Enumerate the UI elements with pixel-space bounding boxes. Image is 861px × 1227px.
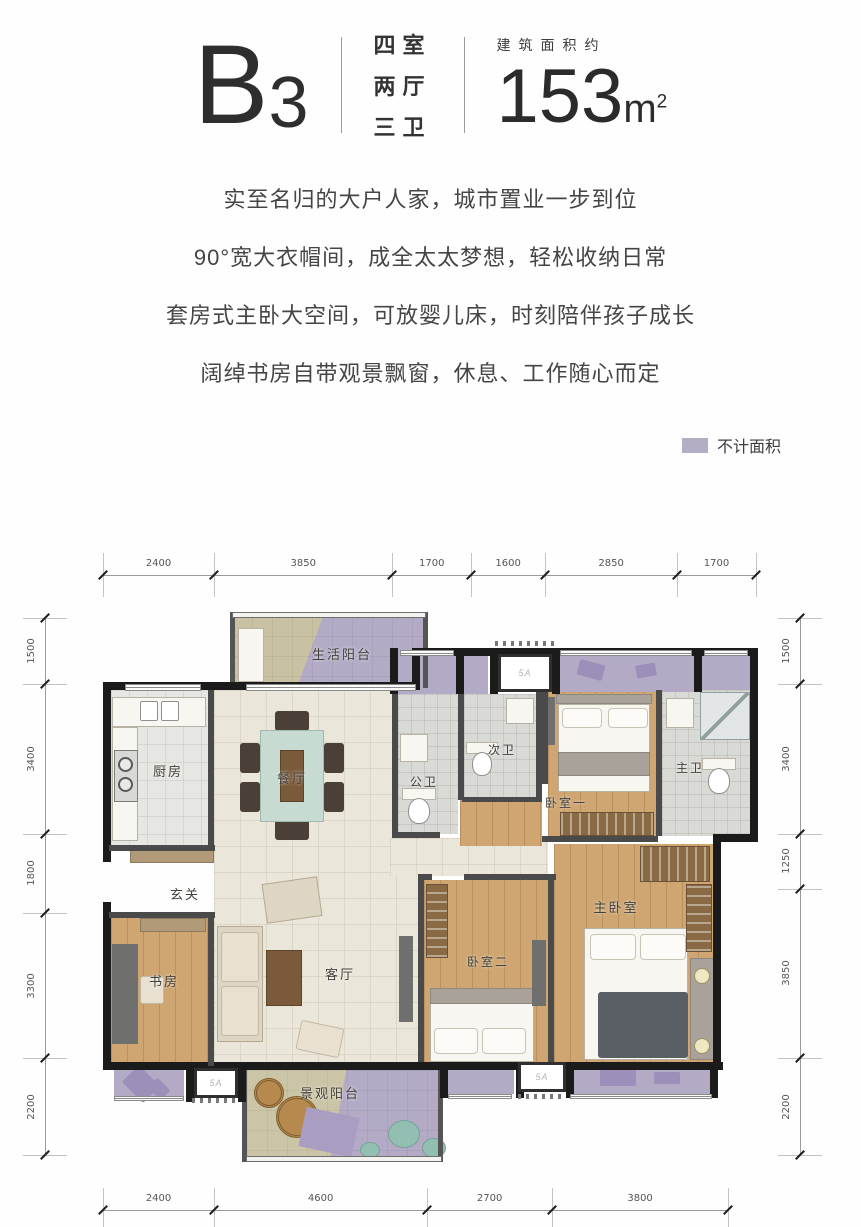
shower	[700, 692, 750, 740]
ac-platform: 5A	[518, 1062, 566, 1092]
dresser	[532, 940, 546, 1006]
washing-machine	[238, 628, 264, 682]
partition-wall	[392, 832, 440, 838]
partition-wall	[208, 918, 214, 1066]
wardrobe	[686, 884, 712, 952]
wardrobe	[560, 812, 654, 836]
dimension-label: 1700	[407, 558, 457, 570]
bathroom-sink	[666, 698, 694, 728]
wall	[552, 650, 560, 694]
dimension-label: 1500	[781, 626, 793, 676]
wall	[440, 1062, 448, 1098]
floorplan-page: B 3 四室 两厅 三卫 建筑面积约 153 m2 实至名归的大户人家，城市置业…	[0, 0, 861, 1227]
dimension-label: 2400	[134, 558, 184, 570]
dimension-label: 1500	[26, 626, 38, 676]
partition-wall	[418, 880, 424, 1062]
pillow	[608, 708, 648, 728]
plant	[388, 1120, 420, 1148]
dim-line-bottom	[103, 1210, 728, 1211]
window	[704, 650, 748, 656]
wall	[710, 1062, 718, 1098]
wall	[238, 1062, 246, 1102]
room-label-second_bath: 次卫	[432, 741, 572, 759]
kitchen-sink	[161, 701, 179, 721]
wall	[713, 842, 721, 1070]
dim-line-left	[45, 618, 46, 1155]
balcony-railing	[246, 1156, 442, 1162]
room-label-bedroom_one: 卧室一	[496, 794, 636, 812]
dimension-label: 3400	[26, 734, 38, 784]
excluded-area	[702, 656, 750, 690]
dimension-label: 2400	[134, 1193, 184, 1205]
pillow	[562, 708, 602, 728]
window	[570, 1094, 712, 1099]
balcony-decor	[654, 1072, 680, 1084]
hatch-marks	[192, 1098, 238, 1103]
kitchen-sink	[140, 701, 158, 721]
armchair	[261, 876, 322, 923]
room-label-study: 书房	[94, 971, 234, 989]
dining-chair	[275, 711, 309, 731]
pillow	[590, 934, 636, 960]
desk	[112, 944, 138, 1044]
kitchen-counter	[112, 697, 206, 727]
window	[448, 1094, 512, 1099]
dimension-label: 2200	[26, 1082, 38, 1132]
wardrobe	[640, 846, 710, 882]
dim-line-top	[103, 575, 756, 576]
bookshelf	[140, 918, 206, 932]
wardrobe	[426, 884, 448, 958]
window	[246, 684, 416, 691]
floorplan-drawing: 5A5A5A生活阳台厨房餐厅公卫次卫卧室一主卫玄关书房客厅卧室二主卧室景观阳台2…	[0, 0, 861, 1227]
pillow	[434, 1028, 478, 1054]
blanket	[598, 992, 688, 1058]
dining-chair	[240, 782, 260, 812]
bathroom-sink	[400, 734, 428, 762]
room-label-service_balcony: 生活阳台	[272, 644, 412, 662]
dimension-label: 2700	[465, 1193, 515, 1205]
wall	[186, 1062, 194, 1102]
window	[560, 650, 692, 656]
wall	[566, 1062, 574, 1098]
partition-wall	[392, 694, 398, 838]
dimension-label: 1800	[26, 848, 38, 898]
lamp	[694, 968, 710, 984]
dimension-label: 3400	[781, 734, 793, 784]
dining-chair	[275, 820, 309, 840]
dimension-label: 3300	[26, 961, 38, 1011]
room-label-bedroom_two: 卧室二	[418, 953, 558, 971]
partition-wall	[464, 874, 556, 880]
room-label-living: 客厅	[270, 964, 410, 982]
ac-platform: 5A	[194, 1068, 238, 1098]
partition-wall	[109, 912, 215, 918]
partition-wall	[109, 845, 215, 851]
window	[125, 684, 201, 691]
window	[114, 1096, 184, 1101]
room-label-public_bath: 公卫	[354, 773, 494, 791]
room-label-dining: 餐厅	[222, 768, 362, 786]
partition-wall	[542, 836, 658, 842]
dimension-label: 2850	[586, 558, 636, 570]
bed-fold	[430, 988, 534, 1004]
sofa-cushion	[221, 986, 259, 1036]
dimension-label: 1700	[691, 558, 741, 570]
room-label-entry: 玄关	[115, 884, 255, 902]
room-label-master_bedroom: 主卧室	[546, 897, 686, 915]
dimension-label: 1600	[483, 558, 533, 570]
dimension-label: 1250	[781, 836, 793, 886]
wall	[490, 650, 498, 694]
dimension-label: 2200	[781, 1082, 793, 1132]
hatch-marks	[518, 1094, 566, 1099]
dimension-label: 3850	[781, 948, 793, 998]
bed-headboard	[556, 694, 652, 704]
lamp	[694, 1038, 710, 1054]
wall	[694, 652, 702, 692]
partition-wall	[542, 690, 548, 784]
balcony-wall	[230, 612, 235, 688]
burner	[118, 777, 133, 792]
dining-chair	[324, 782, 344, 812]
room-label-kitchen: 厨房	[98, 761, 238, 779]
balcony-railing	[232, 612, 426, 618]
pillow	[640, 934, 686, 960]
wall	[456, 648, 464, 694]
bathroom-sink	[506, 698, 534, 724]
pillow	[482, 1028, 526, 1054]
room-label-view_balcony: 景观阳台	[260, 1083, 400, 1101]
dimension-label: 4600	[296, 1193, 346, 1205]
hatch-marks	[495, 641, 557, 646]
room-label-master_bath: 主卫	[620, 759, 760, 777]
dimension-label: 3850	[278, 558, 328, 570]
toilet-bowl	[408, 798, 430, 824]
excluded-area	[574, 1066, 710, 1094]
wall	[713, 834, 758, 842]
ac-platform: 5A	[498, 654, 552, 692]
wall	[750, 656, 758, 842]
dimension-label: 3800	[615, 1193, 665, 1205]
excluded-area	[448, 1066, 514, 1094]
balcony-decor	[600, 1070, 636, 1086]
